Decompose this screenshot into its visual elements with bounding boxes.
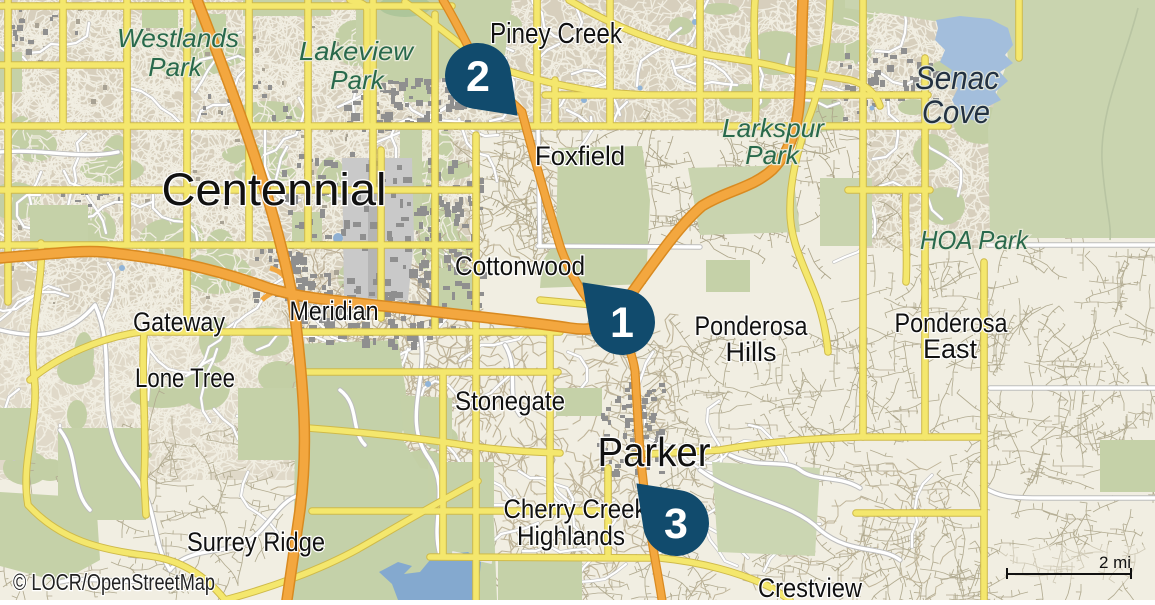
svg-text:Cherry Creek: Cherry Creek <box>504 494 647 524</box>
svg-text:Gateway: Gateway <box>133 307 225 337</box>
svg-text:Hills: Hills <box>726 337 777 367</box>
svg-text:Park: Park <box>148 52 203 82</box>
svg-text:Highlands: Highlands <box>517 521 625 551</box>
svg-text:Meridian: Meridian <box>290 296 379 326</box>
svg-text:1: 1 <box>610 299 634 347</box>
svg-text:East: East <box>923 334 978 364</box>
svg-text:Crestview: Crestview <box>758 573 862 600</box>
svg-text:Stonegate: Stonegate <box>455 386 565 416</box>
svg-text:Parker: Parker <box>598 429 711 475</box>
svg-text:Lakeview: Lakeview <box>299 36 415 66</box>
svg-text:2 mi: 2 mi <box>1099 553 1131 572</box>
svg-text:Senac: Senac <box>915 60 999 96</box>
svg-text:Surrey Ridge: Surrey Ridge <box>187 527 325 557</box>
svg-text:Westlands: Westlands <box>117 23 239 53</box>
svg-text:Foxfield: Foxfield <box>535 141 625 171</box>
svg-text:Cottonwood: Cottonwood <box>455 251 585 281</box>
svg-text:© LOCR/OpenStreetMap: © LOCR/OpenStreetMap <box>13 569 215 595</box>
svg-text:Park: Park <box>330 65 385 95</box>
svg-text:2: 2 <box>466 53 490 101</box>
svg-text:Piney Creek: Piney Creek <box>490 18 622 50</box>
svg-text:HOA Park: HOA Park <box>920 225 1030 255</box>
svg-text:3: 3 <box>664 500 688 548</box>
svg-text:Cove: Cove <box>922 94 990 130</box>
svg-text:Park: Park <box>745 140 800 170</box>
svg-text:Centennial: Centennial <box>162 164 387 215</box>
svg-text:Larkspur: Larkspur <box>722 113 825 143</box>
svg-text:Lone Tree: Lone Tree <box>135 363 235 393</box>
